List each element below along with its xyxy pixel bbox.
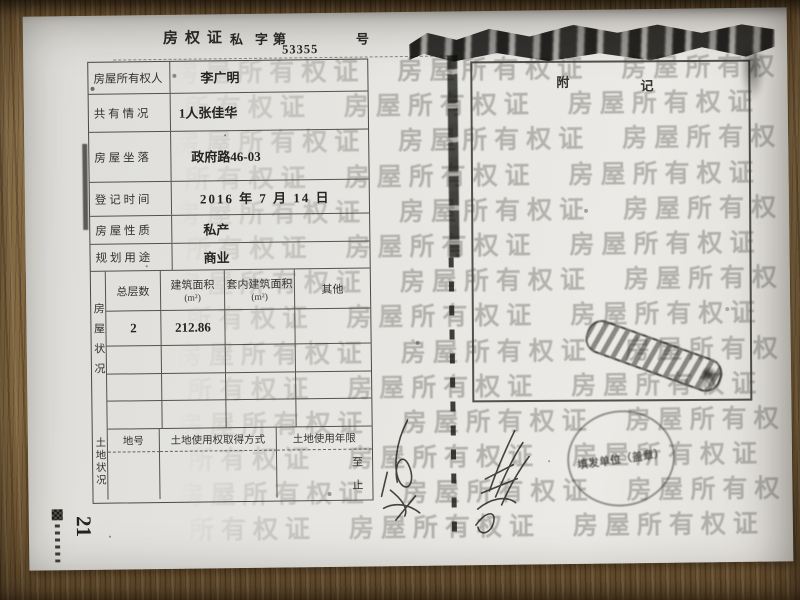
land-condition-section: 土地状况 地号 土地使用权取得方式 土地使用年限 至 止 (93, 426, 373, 499)
cell-empty (162, 373, 226, 401)
field-value-location: 政府路46-03 (171, 129, 369, 180)
col-header-land-right-method: 土地使用权取得方式 (160, 428, 277, 452)
table-row: 房屋所有权人 李广明 (88, 59, 367, 94)
cell-empty (296, 343, 371, 372)
field-value-coownership: 1人张佳华 (171, 91, 368, 130)
field-label-location: 房 屋 坐 落 (89, 132, 172, 182)
toner-smudge-band (409, 20, 776, 66)
cell-empty (226, 399, 296, 428)
housing-side-label: 房屋状况 (90, 272, 108, 430)
cell-empty (107, 401, 162, 430)
col-header-building-area: 建筑面积(m²) (161, 270, 225, 311)
page-number: 21 (71, 516, 96, 537)
col-header-land-use-term: 土地使用年限 (277, 426, 372, 450)
table-row: 共 有 情 况 1人张佳华 (89, 91, 368, 132)
col-header-land-number: 地号 (108, 429, 160, 453)
certificate-table: 房屋所有权人 李广明 共 有 情 况 1人张佳华 房 屋 坐 落 政府路46-0… (87, 58, 373, 503)
cell-land-use-term: 至 止 (277, 449, 373, 497)
field-label-coownership: 共 有 情 况 (89, 94, 171, 132)
issuing-unit-round-stamp: 填发单位（盖章） (561, 404, 681, 514)
term-from: 至 (352, 453, 363, 469)
registry-mark-barcode (55, 524, 60, 562)
col-header-other: 其他 (295, 268, 370, 309)
table-row: 房 屋 坐 落 政府路46-03 (89, 129, 369, 182)
toner-smudge-corner (739, 52, 766, 102)
cell-building-area: 212.86 (161, 310, 225, 346)
housing-grid: 总层数 建筑面积(m²) 套内建筑面积(m²) 其他 2 212.86 (106, 268, 372, 429)
cell-land-number (108, 452, 161, 500)
col-header-inner-area: 套内建筑面积(m²) (225, 269, 295, 310)
registry-mark-square (52, 509, 63, 520)
table-row: 规 划 用 途 商业 (90, 241, 369, 271)
serial-number: 53355 (282, 42, 318, 57)
cell-empty (107, 374, 162, 402)
annex-label-left: 附 (556, 72, 569, 91)
cell-empty (296, 398, 371, 427)
serial-suffix: 号 (356, 28, 369, 47)
cell-empty (295, 308, 370, 344)
cell-empty (296, 371, 371, 399)
wooden-desk-background: 房权证 私 字第 53355 号 房屋所有权证 房屋所有权证 房屋所有权证 房屋… (0, 0, 800, 600)
land-side-label: 土地状况 (92, 430, 108, 500)
left-border-streak (82, 144, 88, 230)
table-row: 房 屋 性 质 私产 (90, 213, 369, 244)
handwritten-scribble-left (378, 412, 439, 525)
certificate-type-char: 私 (230, 29, 243, 48)
field-label-planned-use: 规 划 用 途 (90, 244, 172, 271)
fold-line-dashed (449, 257, 458, 545)
field-value-planned-use: 商业 (172, 241, 369, 269)
cell-land-right-method (160, 451, 278, 499)
land-grid: 地号 土地使用权取得方式 土地使用年限 至 止 (108, 426, 373, 499)
cell-floors: 2 (106, 311, 161, 347)
field-label-owner: 房屋所有权人 (88, 62, 170, 94)
cell-empty (226, 344, 296, 373)
round-stamp-text: 填发单位（盖章） (576, 445, 665, 472)
field-value-owner: 李广明 (170, 59, 367, 92)
cell-empty (225, 309, 295, 345)
field-label-property-nature: 房 屋 性 质 (90, 216, 172, 244)
field-value-registration-date: 2016 年 7 月 14 日 (172, 179, 369, 214)
handwritten-scribble-right (465, 420, 541, 545)
fold-line-heavy (447, 55, 459, 257)
field-value-property-nature: 私产 (172, 213, 369, 242)
housing-condition-section: 房屋状况 总层数 建筑面积(m²) 套内建筑面积(m²) 其他 2 212.86 (91, 268, 372, 429)
certificate-title: 房权证 (163, 26, 229, 48)
cell-empty (162, 400, 226, 429)
table-row: 登 记 时 间 2016 年 7 月 14 日 (90, 179, 369, 216)
annex-label-right: 记 (640, 75, 653, 94)
toner-specks (224, 134, 226, 136)
certificate-paper: 房权证 私 字第 53355 号 房屋所有权证 房屋所有权证 房屋所有权证 房屋… (23, 7, 794, 570)
cell-empty (107, 346, 162, 375)
cell-empty (226, 372, 296, 400)
cell-empty (162, 345, 226, 374)
field-label-registration-date: 登 记 时 间 (90, 182, 172, 216)
term-to: 止 (352, 477, 363, 493)
col-header-floors: 总层数 (106, 271, 161, 312)
